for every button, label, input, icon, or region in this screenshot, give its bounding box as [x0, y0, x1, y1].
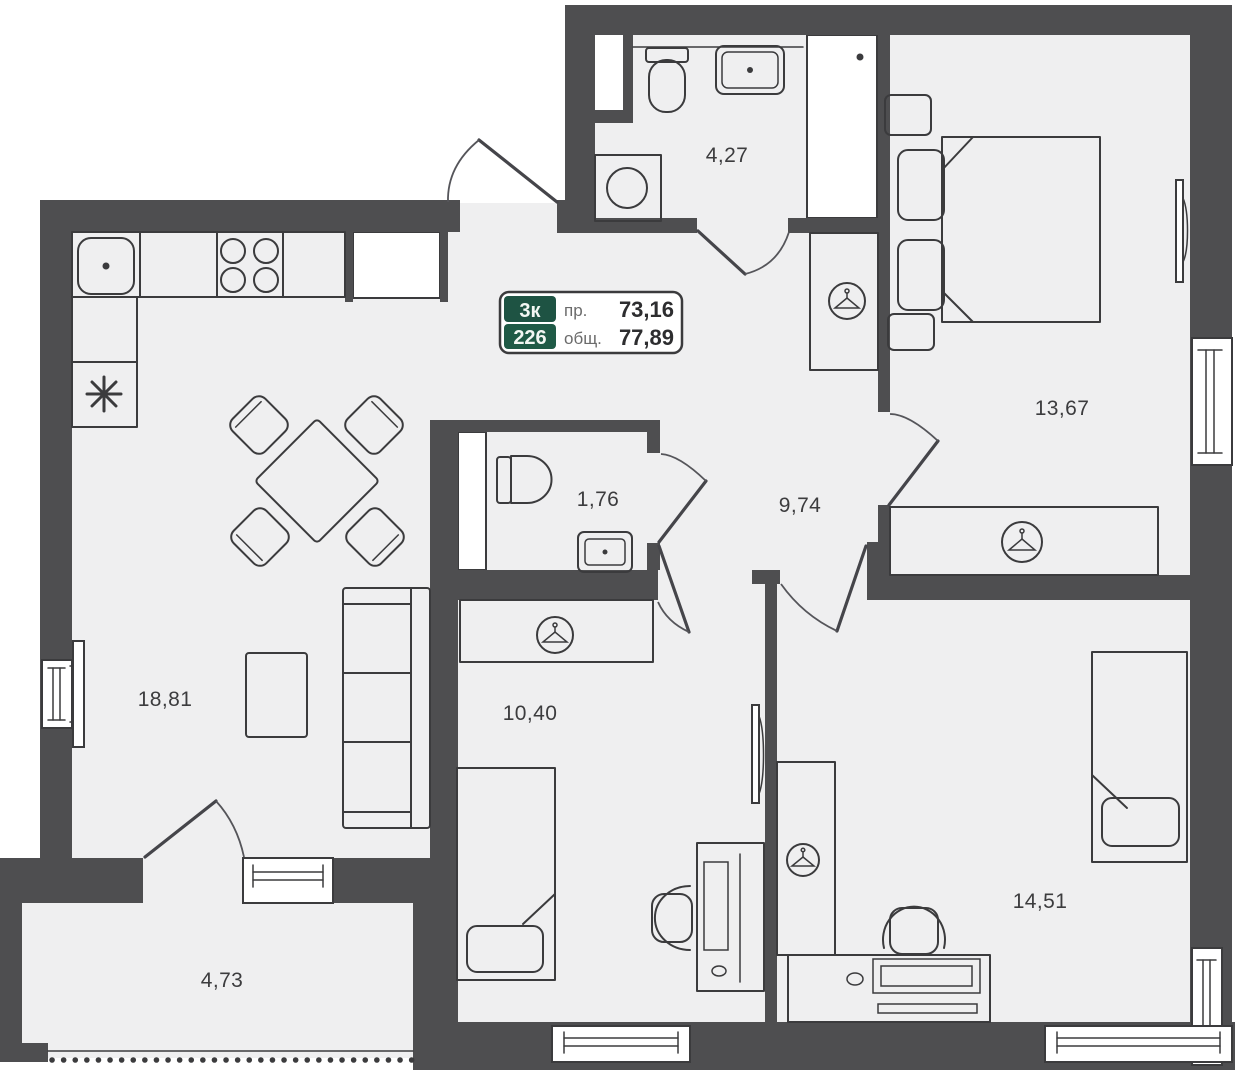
tv-bedroom	[1176, 180, 1183, 282]
floor-plan: 4,27 13,67 1,76 9,74 18,81 10,40 14,51 4…	[0, 0, 1235, 1070]
cabinet-knob	[857, 54, 864, 61]
window-living-left	[42, 660, 72, 728]
room-label-bedroom-second: 14,51	[1013, 890, 1068, 913]
tv-small-room	[752, 705, 759, 803]
room-label-balcony: 4,73	[201, 969, 243, 992]
tv-living	[73, 641, 84, 747]
room-label-bedroom-small: 10,40	[503, 702, 558, 725]
window-small-bottom	[552, 1026, 690, 1062]
window-bedroom-right	[1192, 338, 1232, 465]
living-area-label: пр.	[564, 301, 587, 320]
door-entrance	[448, 140, 557, 202]
total-area-label: общ.	[564, 329, 602, 348]
vent-shaft-wc	[458, 432, 486, 570]
vent-shaft-bathroom	[595, 33, 623, 111]
window-balcony-block	[243, 858, 333, 903]
flat-number: 226	[513, 327, 546, 349]
room-label-hallway: 9,74	[779, 494, 821, 517]
room-label-bathroom: 4,27	[706, 144, 748, 167]
flat-info-badge[interactable]: 3к 226 пр. 73,16 общ. 77,89	[500, 292, 682, 353]
room-label-kitchen-living: 18,81	[138, 688, 193, 711]
room-label-wc: 1,76	[577, 488, 619, 511]
closet-cabinet	[807, 35, 877, 218]
living-area-value: 73,16	[619, 297, 674, 322]
room-label-bedroom-main: 13,67	[1035, 397, 1090, 420]
window-second-bottom	[1045, 1026, 1232, 1062]
rooms-count: 3к	[519, 300, 541, 322]
total-area-value: 77,89	[619, 325, 674, 350]
vent-shaft-kitchen	[353, 232, 440, 298]
fridge-snowflake-icon	[87, 377, 121, 411]
